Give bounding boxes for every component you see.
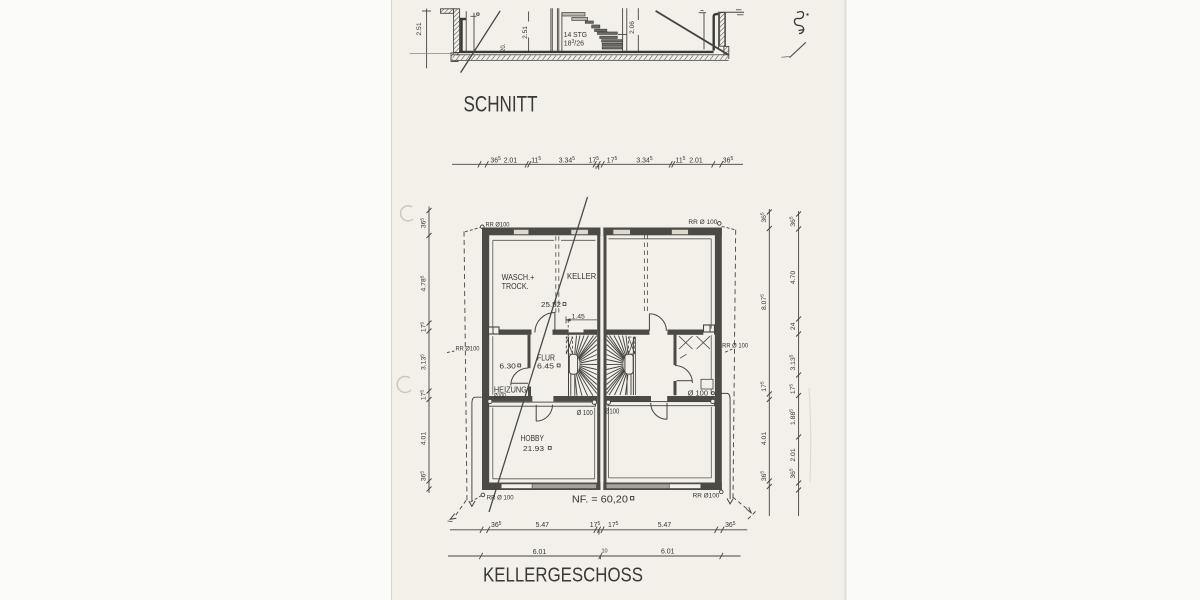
- svg-text:KELLER: KELLER: [567, 272, 596, 281]
- svg-text:TROCK.: TROCK.: [502, 282, 529, 291]
- svg-text:6.30: 6.30: [499, 362, 516, 371]
- svg-text:4.01: 4.01: [761, 432, 768, 445]
- svg-text:RR Ø100: RR Ø100: [693, 493, 720, 500]
- svg-text:RR Ø100: RR Ø100: [486, 222, 510, 229]
- svg-text:RR Ø100: RR Ø100: [456, 346, 480, 353]
- svg-text:4.01: 4.01: [421, 432, 428, 445]
- svg-text:5.47: 5.47: [658, 522, 672, 529]
- svg-text:HOBBY: HOBBY: [521, 434, 545, 443]
- svg-text:6.01: 6.01: [661, 549, 675, 556]
- svg-text:Ø100: Ø100: [494, 393, 506, 400]
- svg-text:1.45: 1.45: [572, 313, 585, 320]
- svg-text:SCHNITT: SCHNITT: [464, 92, 538, 117]
- svg-text:2.51: 2.51: [416, 22, 423, 35]
- svg-text:2.01: 2.01: [790, 448, 797, 461]
- svg-text:2.51: 2.51: [522, 26, 529, 39]
- svg-text:KELLERGESCHOSS: KELLERGESCHOSS: [483, 563, 643, 586]
- svg-text:6.01: 6.01: [533, 549, 547, 556]
- svg-text:RR Ø 100: RR Ø 100: [487, 495, 514, 502]
- svg-text:Ø 100: Ø 100: [688, 389, 708, 398]
- svg-text:2.01: 2.01: [689, 157, 703, 164]
- svg-text:5.47: 5.47: [536, 522, 550, 529]
- svg-text:10: 10: [601, 549, 607, 555]
- svg-text:NF. = 60,20: NF. = 60,20: [572, 494, 628, 506]
- svg-text:20.: 20.: [501, 43, 507, 52]
- svg-text:2.06: 2.06: [629, 21, 636, 34]
- svg-text:21.93: 21.93: [523, 444, 544, 453]
- svg-text:6.45: 6.45: [537, 362, 554, 371]
- svg-text:WASCH.+: WASCH.+: [502, 273, 535, 282]
- svg-text:RR Ø 100: RR Ø 100: [722, 342, 748, 349]
- svg-text:4.70: 4.70: [790, 271, 797, 284]
- svg-text:2.01: 2.01: [504, 157, 518, 164]
- svg-text:Ø 100: Ø 100: [577, 408, 593, 417]
- svg-text:Ø100: Ø100: [605, 407, 620, 416]
- svg-text:RR Ø 100: RR Ø 100: [688, 219, 717, 226]
- svg-text:14 STG: 14 STG: [564, 32, 587, 39]
- svg-text:25.52: 25.52: [541, 300, 561, 309]
- svg-text:24: 24: [790, 322, 797, 330]
- svg-text:183/26: 183/26: [564, 39, 584, 47]
